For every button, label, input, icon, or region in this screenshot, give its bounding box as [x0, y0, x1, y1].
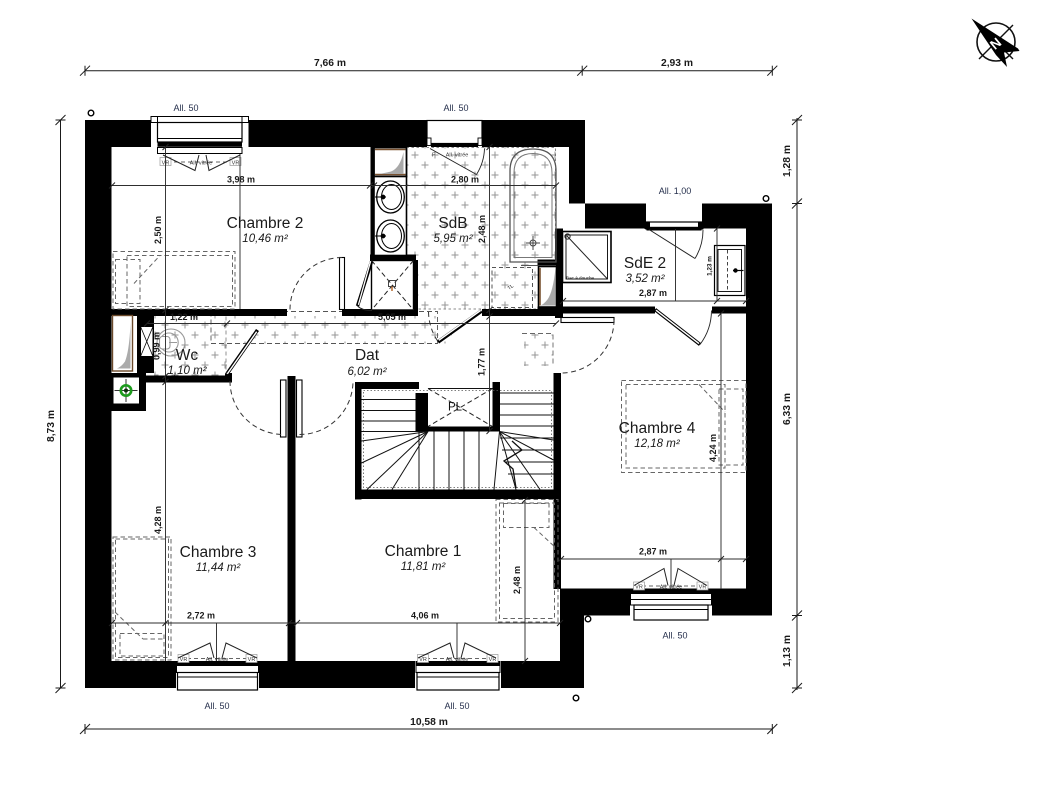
svg-text:4,24 m: 4,24 m — [708, 434, 718, 462]
svg-text:4,06 m: 4,06 m — [411, 611, 439, 621]
svg-text:6,33 m: 6,33 m — [782, 393, 793, 425]
svg-text:1,10 m²: 1,10 m² — [168, 365, 208, 377]
svg-text:10,46 m²: 10,46 m² — [242, 233, 289, 245]
svg-text:All. 1,00: All. 1,00 — [659, 186, 692, 196]
svg-text:Chambre 4: Chambre 4 — [619, 420, 696, 437]
svg-text:PL: PL — [448, 402, 463, 414]
svg-text:VR: VR — [635, 585, 643, 591]
svg-text:All. 50: All. 50 — [173, 103, 198, 113]
svg-text:SdE 2: SdE 2 — [624, 255, 666, 272]
svg-text:3,52 m²: 3,52 m² — [626, 273, 666, 285]
svg-text:2,87 m: 2,87 m — [639, 288, 667, 298]
svg-text:3,98 m: 3,98 m — [227, 175, 255, 185]
svg-text:1,23 m: 1,23 m — [707, 256, 714, 276]
svg-text:10,58 m: 10,58 m — [410, 717, 448, 728]
svg-text:Dat: Dat — [355, 347, 380, 364]
svg-text:All. 50: All. 50 — [444, 701, 469, 711]
svg-text:VR: VR — [699, 585, 707, 591]
svg-text:Chambre 2: Chambre 2 — [227, 215, 304, 232]
svg-text:2,80 m: 2,80 m — [451, 175, 479, 185]
svg-text:5,95 m²: 5,95 m² — [434, 233, 474, 245]
svg-text:0,99 m: 0,99 m — [152, 332, 162, 360]
svg-text:12,18 m²: 12,18 m² — [634, 438, 681, 450]
svg-text:2,72 m: 2,72 m — [187, 611, 215, 621]
svg-text:Chambre 3: Chambre 3 — [180, 544, 257, 561]
svg-text:All. vitrée: All. vitrée — [206, 657, 229, 663]
svg-text:All. 50: All. 50 — [662, 631, 687, 641]
svg-text:2,50 m: 2,50 m — [153, 216, 163, 244]
svg-text:Chambre 1: Chambre 1 — [385, 543, 462, 560]
svg-text:11,81 m²: 11,81 m² — [401, 561, 447, 573]
svg-text:All. 50: All. 50 — [443, 103, 468, 113]
svg-text:1,22 m: 1,22 m — [170, 312, 198, 322]
svg-text:VR: VR — [180, 657, 188, 663]
svg-text:7,66 m: 7,66 m — [314, 58, 346, 69]
svg-text:4,28 m: 4,28 m — [153, 506, 163, 534]
svg-text:VR: VR — [232, 161, 240, 167]
svg-text:All. 50: All. 50 — [204, 701, 229, 711]
svg-text:2,93 m: 2,93 m — [661, 58, 693, 69]
svg-text:Wc: Wc — [176, 347, 199, 364]
svg-text:1,77 m: 1,77 m — [477, 348, 487, 376]
svg-text:All. vitrée: All. vitrée — [190, 161, 213, 167]
svg-text:SdB: SdB — [438, 215, 467, 232]
svg-text:VR: VR — [248, 657, 256, 663]
svg-text:1,28 m: 1,28 m — [782, 145, 793, 177]
svg-text:Bac à douche: Bac à douche — [566, 276, 595, 281]
svg-text:1,13 m: 1,13 m — [782, 635, 793, 667]
svg-text:All. vitrée: All. vitrée — [446, 153, 469, 159]
svg-text:2,48 m: 2,48 m — [512, 566, 522, 594]
svg-text:8,73 m: 8,73 m — [46, 410, 57, 442]
svg-text:VR: VR — [419, 657, 427, 663]
svg-text:11,44 m²: 11,44 m² — [196, 562, 242, 574]
svg-text:2,87 m: 2,87 m — [639, 547, 667, 557]
svg-text:2,48 m: 2,48 m — [477, 215, 487, 243]
svg-text:5,05 m: 5,05 m — [378, 312, 406, 322]
svg-text:6,02 m²: 6,02 m² — [348, 366, 388, 378]
